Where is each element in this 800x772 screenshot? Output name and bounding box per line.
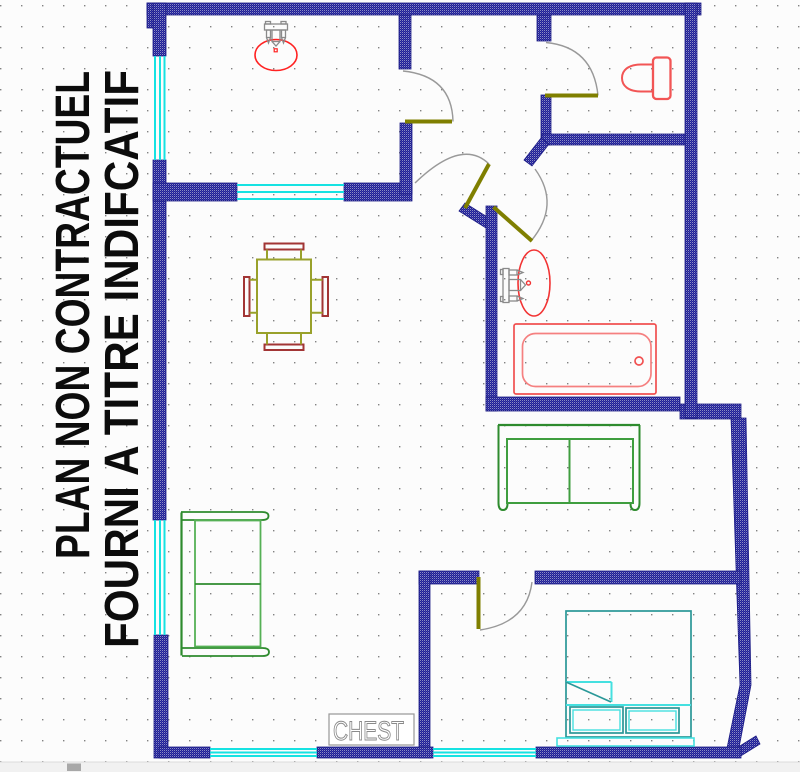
svg-text:PLAN NON CONTRACTUEL: PLAN NON CONTRACTUEL: [47, 71, 100, 559]
svg-text:CHEST: CHEST: [333, 716, 404, 746]
svg-text:FOURNI A TITRE INDIFCATIF: FOURNI A TITRE INDIFCATIF: [96, 70, 149, 648]
